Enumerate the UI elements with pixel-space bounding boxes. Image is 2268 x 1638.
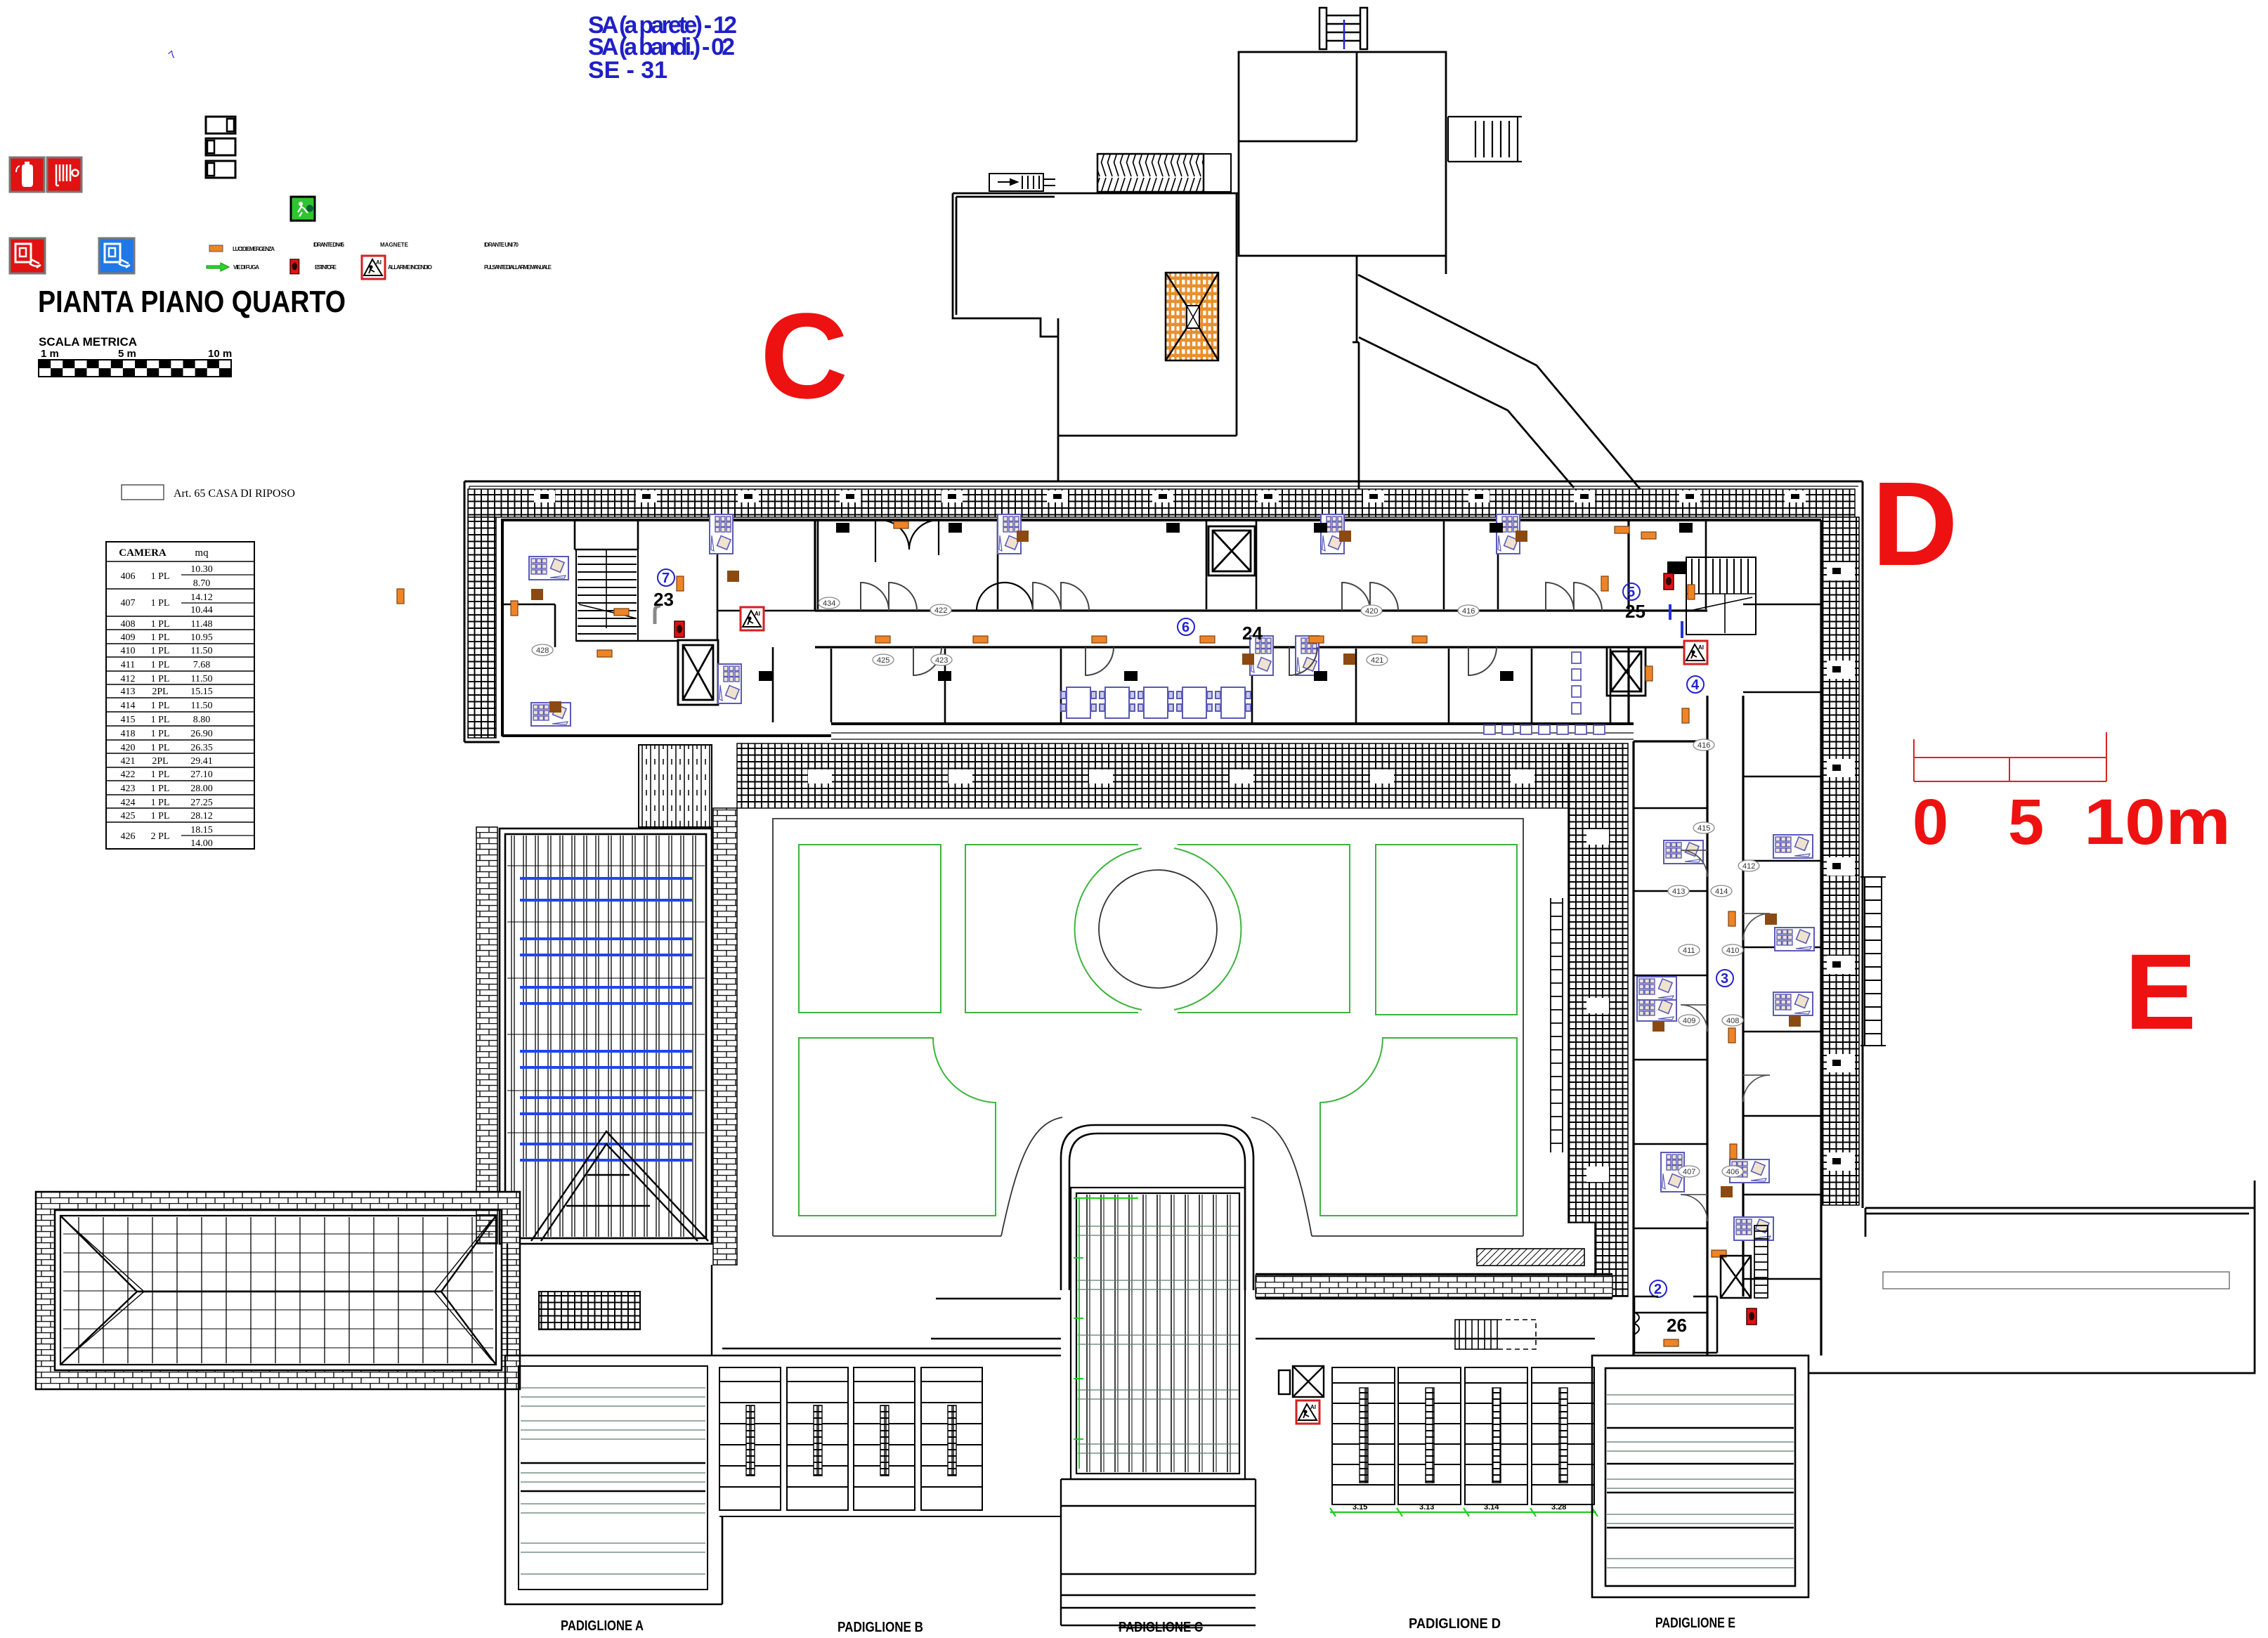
- svg-text:10.30: 10.30: [190, 564, 213, 575]
- svg-text:421: 421: [1371, 656, 1383, 665]
- svg-text:15.15: 15.15: [190, 687, 213, 697]
- svg-text:1 PL: 1 PL: [151, 701, 170, 711]
- svg-text:14.12: 14.12: [190, 592, 213, 603]
- svg-text:11.48: 11.48: [191, 619, 213, 630]
- svg-text:PIANTA PIANO QUARTO: PIANTA PIANO QUARTO: [38, 285, 346, 319]
- svg-text:409: 409: [1683, 1017, 1695, 1025]
- svg-text:412: 412: [1742, 862, 1755, 871]
- svg-text:SCALA METRICA: SCALA METRICA: [39, 335, 137, 349]
- svg-text:423: 423: [121, 784, 136, 794]
- svg-text:414: 414: [121, 701, 136, 711]
- svg-text:422: 422: [121, 769, 136, 780]
- svg-text:416: 416: [1462, 607, 1475, 616]
- svg-text:1 PL: 1 PL: [151, 598, 170, 609]
- svg-text:PADIGLIONE A: PADIGLIONE A: [561, 1618, 644, 1634]
- svg-text:408: 408: [1726, 1017, 1739, 1025]
- svg-text:5: 5: [1627, 585, 1635, 600]
- svg-text:407: 407: [121, 598, 136, 609]
- svg-text:ESTINTORE: ESTINTORE: [315, 264, 337, 271]
- svg-text:7: 7: [662, 571, 670, 586]
- svg-text:434: 434: [823, 599, 835, 608]
- svg-text:426: 426: [121, 831, 136, 842]
- svg-text:PADIGLIONE D: PADIGLIONE D: [1409, 1616, 1501, 1632]
- svg-text:1 PL: 1 PL: [151, 811, 170, 821]
- svg-text:1 PL: 1 PL: [151, 571, 170, 582]
- svg-text:1 PL: 1 PL: [151, 646, 170, 656]
- svg-text:11.50: 11.50: [191, 646, 213, 656]
- svg-text:26.35: 26.35: [190, 743, 213, 753]
- svg-text:423: 423: [935, 656, 948, 665]
- svg-text:412: 412: [121, 674, 136, 684]
- svg-text:24: 24: [1242, 623, 1263, 644]
- svg-text:411: 411: [121, 660, 135, 670]
- svg-text:1 PL: 1 PL: [151, 743, 170, 753]
- svg-text:1 m: 1 m: [41, 348, 59, 360]
- svg-text:414: 414: [1715, 888, 1728, 896]
- svg-text:27.10: 27.10: [190, 769, 213, 780]
- svg-text:420: 420: [121, 743, 136, 753]
- svg-text:3.28: 3.28: [1551, 1503, 1566, 1512]
- svg-text:27.25: 27.25: [190, 798, 213, 808]
- svg-text:18.15: 18.15: [190, 825, 213, 836]
- svg-text:406: 406: [1726, 1168, 1739, 1176]
- svg-text:PADIGLIONE B: PADIGLIONE B: [838, 1620, 923, 1635]
- svg-text:8.70: 8.70: [193, 578, 211, 589]
- svg-text:410: 410: [121, 646, 136, 656]
- svg-text:10 m: 10 m: [208, 348, 232, 360]
- svg-text:LUCI DI EMERGENZA: LUCI DI EMERGENZA: [233, 246, 275, 252]
- svg-text:1 PL: 1 PL: [151, 632, 170, 643]
- svg-text:8.80: 8.80: [193, 715, 211, 725]
- svg-text:408: 408: [121, 619, 136, 630]
- svg-text:10.95: 10.95: [190, 632, 213, 643]
- svg-text:ALLARME INCENDIO: ALLARME INCENDIO: [388, 264, 432, 271]
- svg-text:0: 0: [1912, 786, 1948, 858]
- svg-text:23: 23: [653, 589, 674, 610]
- svg-text:11.50: 11.50: [191, 674, 213, 684]
- svg-text:1 PL: 1 PL: [151, 729, 170, 739]
- svg-text:6: 6: [1182, 620, 1190, 635]
- svg-text:VIE DI FUGA: VIE DI FUGA: [233, 264, 259, 271]
- svg-text:420: 420: [1365, 607, 1378, 616]
- svg-text:28.00: 28.00: [190, 784, 213, 794]
- svg-text:26: 26: [1667, 1315, 1687, 1336]
- svg-text:1 PL: 1 PL: [151, 660, 170, 670]
- svg-text:425: 425: [121, 811, 136, 821]
- svg-text:11.50: 11.50: [191, 701, 213, 711]
- svg-text:411: 411: [1683, 947, 1695, 955]
- svg-text:D: D: [1872, 457, 1958, 591]
- svg-text:415: 415: [1697, 824, 1710, 833]
- svg-text:1 PL: 1 PL: [151, 769, 170, 780]
- svg-text:428: 428: [536, 646, 549, 655]
- svg-text:PADIGLIONE C: PADIGLIONE C: [1119, 1620, 1203, 1635]
- svg-text:PULSANTE DI ALLARME MANUALE: PULSANTE DI ALLARME MANUALE: [484, 264, 552, 271]
- svg-text:421: 421: [121, 756, 136, 767]
- svg-text:3.14: 3.14: [1484, 1503, 1499, 1512]
- svg-text:3.15: 3.15: [1353, 1503, 1367, 1512]
- svg-text:2PL: 2PL: [152, 687, 168, 697]
- svg-text:1 PL: 1 PL: [151, 784, 170, 794]
- svg-text:410: 410: [1726, 947, 1739, 955]
- svg-text:CAMERA: CAMERA: [119, 547, 167, 559]
- svg-text:MAGNETE: MAGNETE: [380, 242, 409, 248]
- svg-text:424: 424: [121, 798, 136, 808]
- svg-text:14.00: 14.00: [190, 838, 213, 849]
- svg-text:413: 413: [1672, 888, 1685, 896]
- svg-text:28.12: 28.12: [190, 811, 213, 821]
- svg-text:1 PL: 1 PL: [151, 798, 170, 808]
- svg-text:407: 407: [1683, 1168, 1695, 1176]
- svg-text:E: E: [2125, 932, 2196, 1052]
- svg-text:2: 2: [1654, 1282, 1662, 1297]
- svg-text:415: 415: [121, 715, 136, 725]
- svg-text:1 PL: 1 PL: [151, 619, 170, 630]
- svg-text:C: C: [760, 287, 848, 424]
- svg-text:5: 5: [2008, 786, 2044, 858]
- svg-text:IDRANTE UNI 70: IDRANTE UNI 70: [484, 242, 519, 248]
- svg-text:3: 3: [1721, 971, 1728, 987]
- svg-text:4: 4: [1691, 677, 1700, 693]
- svg-text:Art. 65 CASA DI RIPOSO: Art. 65 CASA DI RIPOSO: [174, 488, 295, 500]
- svg-text:406: 406: [121, 571, 136, 582]
- svg-text:1 PL: 1 PL: [151, 715, 170, 725]
- svg-text:418: 418: [121, 729, 136, 739]
- svg-text:7.68: 7.68: [193, 660, 211, 670]
- svg-text:10m: 10m: [2084, 786, 2231, 858]
- svg-text:26.90: 26.90: [190, 729, 213, 739]
- svg-text:2PL: 2PL: [152, 756, 168, 767]
- svg-text:422: 422: [934, 606, 947, 615]
- svg-text:IDRANTE DN45: IDRANTE DN45: [313, 242, 345, 248]
- svg-text:413: 413: [121, 687, 136, 697]
- svg-text:3.13: 3.13: [1419, 1503, 1434, 1512]
- svg-text:25: 25: [1625, 601, 1645, 622]
- svg-text:SE - 31: SE - 31: [588, 57, 667, 84]
- svg-text:425: 425: [877, 656, 889, 665]
- svg-text:409: 409: [121, 632, 136, 643]
- svg-text:2 PL: 2 PL: [151, 831, 170, 842]
- svg-text:416: 416: [1697, 741, 1710, 750]
- svg-text:10.44: 10.44: [190, 605, 213, 616]
- svg-text:5 m: 5 m: [118, 348, 136, 360]
- svg-text:1 PL: 1 PL: [151, 674, 170, 684]
- svg-text:mq: mq: [195, 547, 209, 559]
- svg-text:PADIGLIONE E: PADIGLIONE E: [1655, 1616, 1735, 1631]
- svg-text:29.41: 29.41: [190, 756, 213, 767]
